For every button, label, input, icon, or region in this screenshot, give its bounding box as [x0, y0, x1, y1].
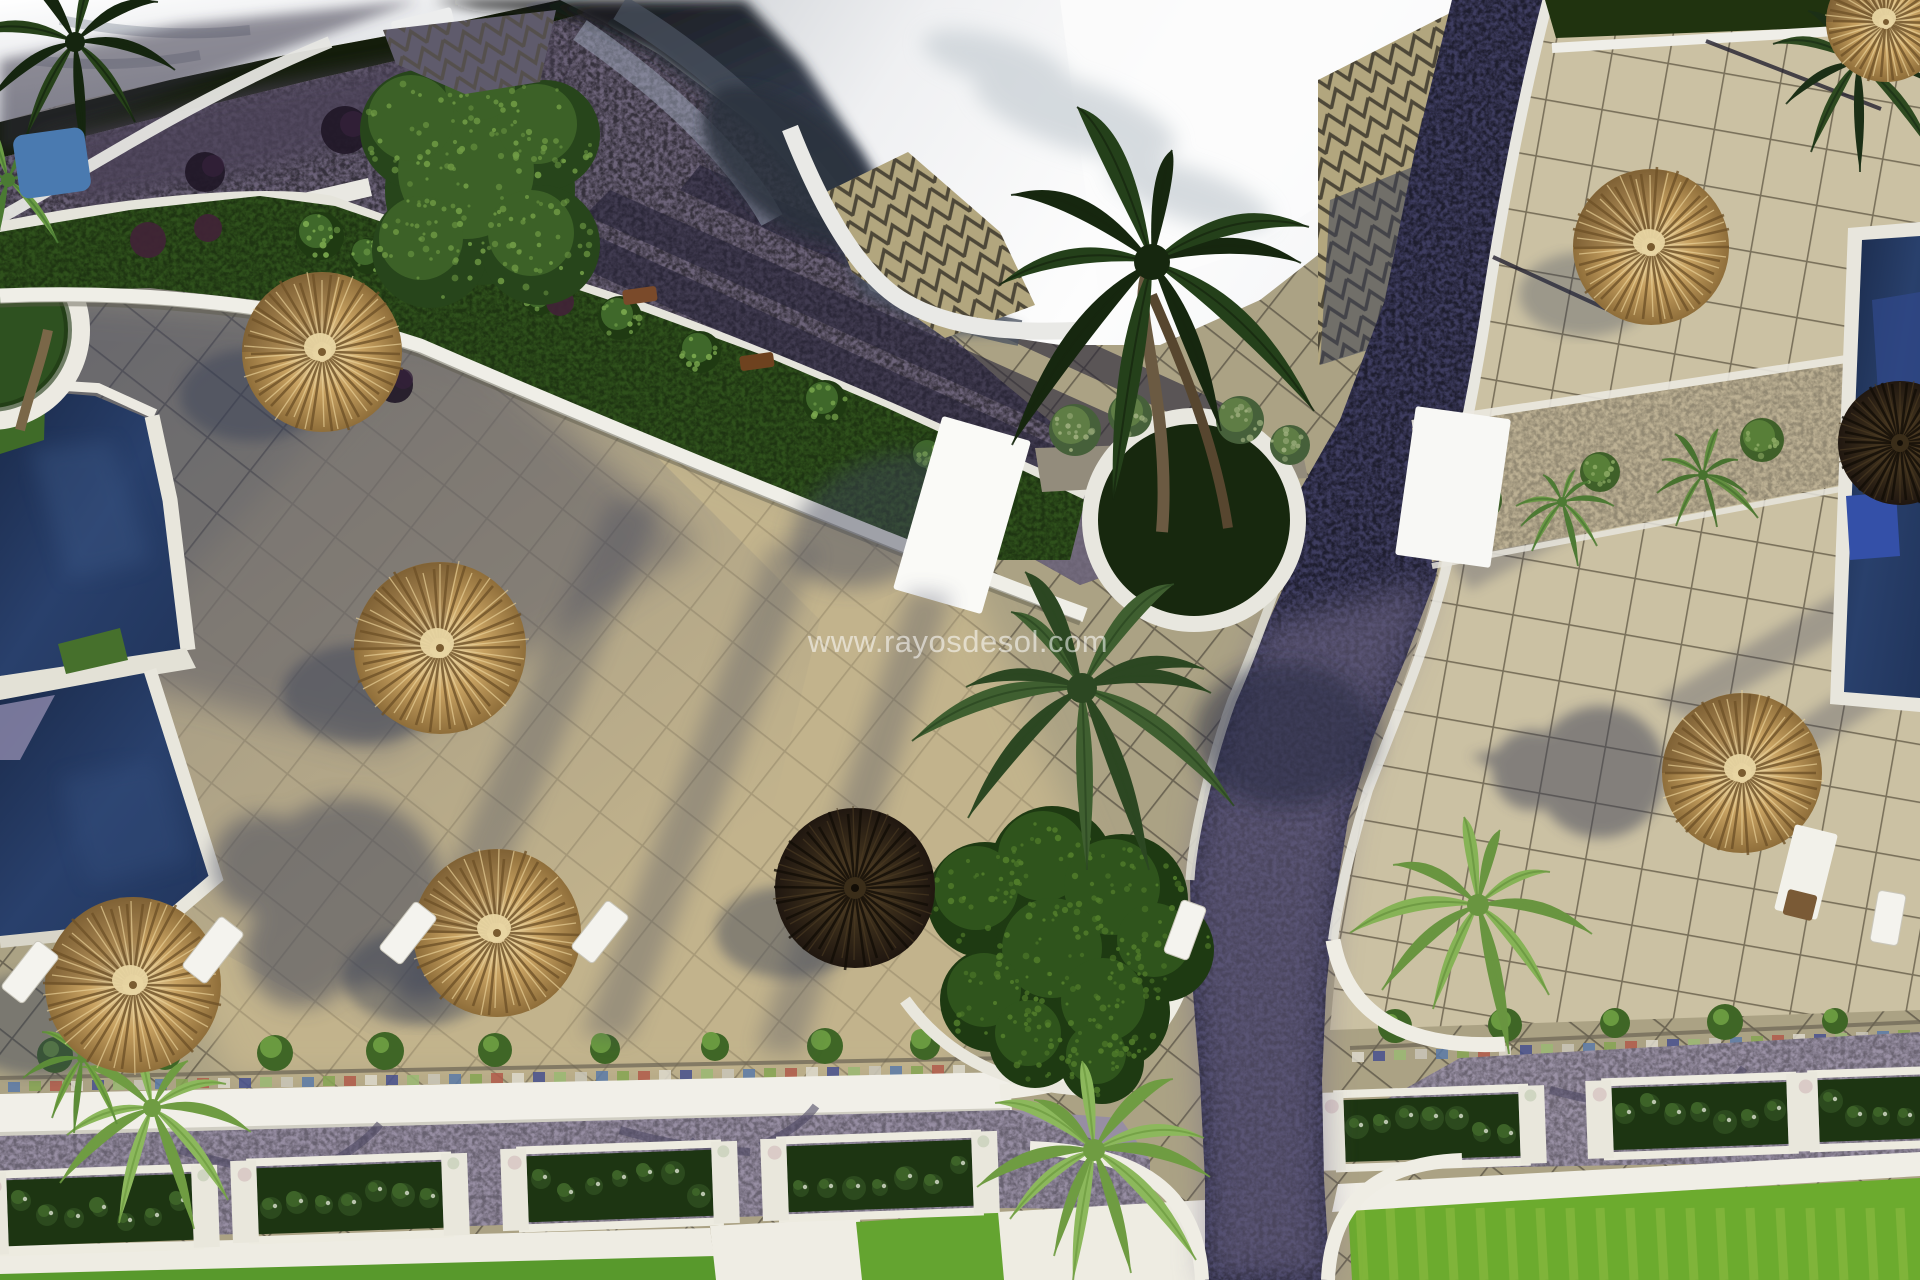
- svg-text:www.rayosdesol.com: www.rayosdesol.com: [807, 624, 1108, 659]
